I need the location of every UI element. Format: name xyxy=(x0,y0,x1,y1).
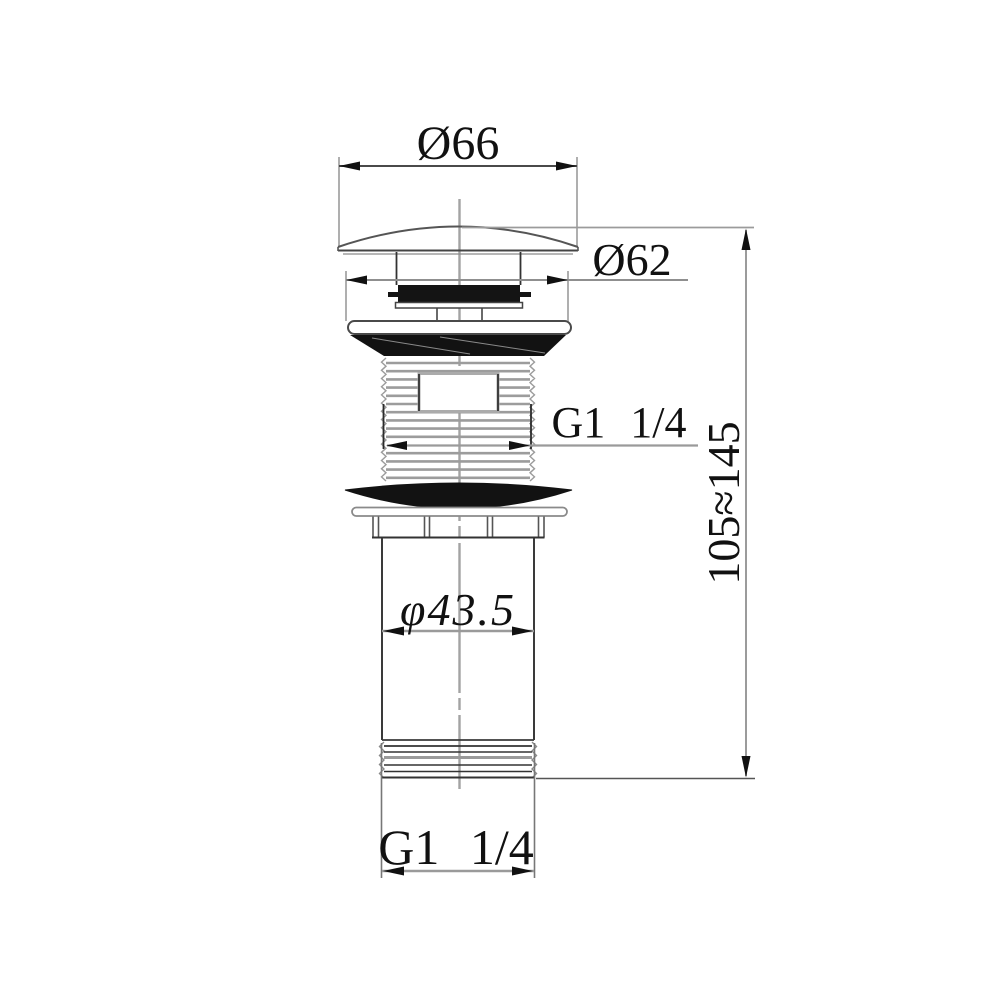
seal-washer xyxy=(398,285,520,302)
arrowhead-right xyxy=(556,162,577,171)
pipe-diameter-label: φ43.5 xyxy=(400,584,516,635)
cap-dome xyxy=(338,227,578,255)
bottom-thread-label: G1 1/4 xyxy=(378,819,534,875)
arrowhead-right xyxy=(509,441,530,450)
seal-tab-left xyxy=(388,292,398,297)
bottom-thread-zigzags xyxy=(380,742,537,778)
drain-fitting-drawing: Ø66 Ø62 xyxy=(0,0,1000,1000)
flange-bowl xyxy=(345,483,572,509)
arrowhead-down xyxy=(742,756,751,778)
seal-tab-right xyxy=(520,292,531,297)
washer-plate xyxy=(396,303,523,309)
lock-nut xyxy=(372,517,545,538)
tail-pipe xyxy=(382,538,534,740)
overflow-slot xyxy=(419,374,498,412)
arrowhead-up xyxy=(742,229,751,251)
dim-pipe-diameter: φ43.5 xyxy=(382,584,534,636)
overall-height-label: 105≈145 xyxy=(698,421,749,584)
overflow-window xyxy=(419,374,498,412)
arrowhead-left xyxy=(386,441,407,450)
arrowhead-left xyxy=(339,162,360,171)
top-thread-label: G1 1/4 xyxy=(552,398,687,447)
technical-drawing-page: Ø66 Ø62 xyxy=(0,0,1000,1000)
trim-diameter-label: Ø62 xyxy=(592,234,671,285)
flange-collar xyxy=(352,508,567,517)
arrowhead-left xyxy=(346,276,367,285)
cap-diameter-label: Ø66 xyxy=(417,117,500,170)
arrowhead-right xyxy=(547,276,568,285)
flange-plate xyxy=(348,321,571,334)
rubber-gasket xyxy=(350,335,566,356)
dim-bottom-thread: G1 1/4 xyxy=(378,743,534,878)
cap-dome-arc xyxy=(338,227,578,248)
bottom-threads xyxy=(380,742,537,778)
